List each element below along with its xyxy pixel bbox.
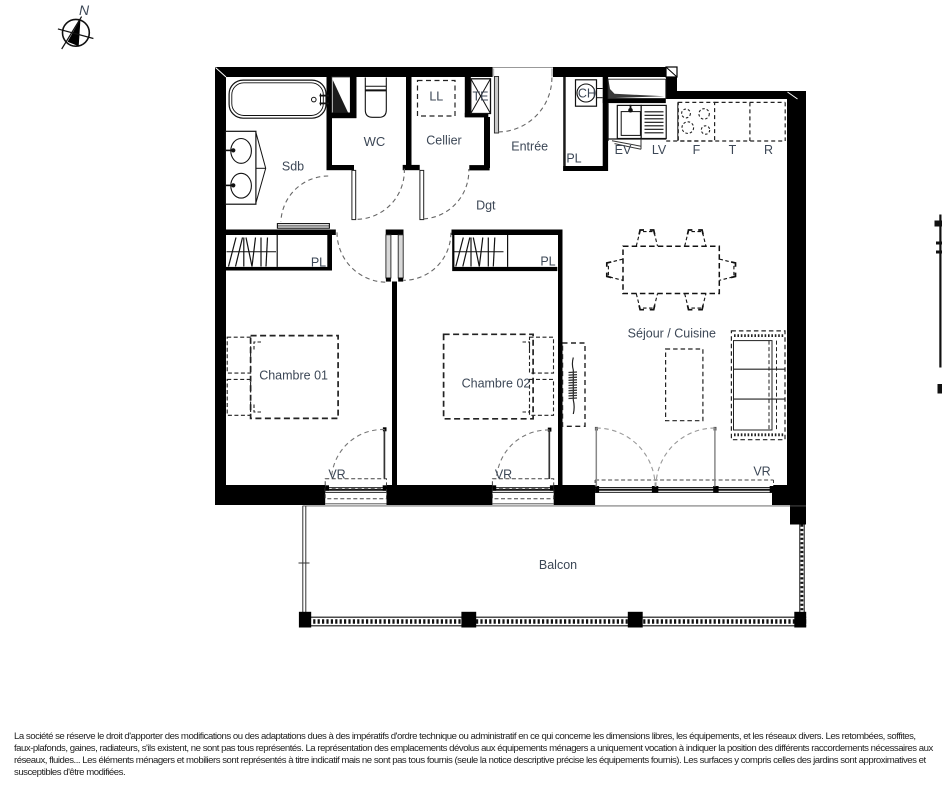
svg-text:Chambre 01: Chambre 01 <box>259 369 328 383</box>
svg-text:CH: CH <box>578 87 596 101</box>
svg-text:Séjour / Cuisine: Séjour / Cuisine <box>628 326 716 340</box>
svg-text:T: T <box>729 143 737 157</box>
svg-text:VR: VR <box>328 468 345 482</box>
svg-text:Cellier: Cellier <box>426 134 461 148</box>
svg-text:PL: PL <box>566 152 581 166</box>
svg-text:Balcon: Balcon <box>539 558 577 572</box>
svg-text:Dgt: Dgt <box>476 199 496 213</box>
svg-text:F: F <box>693 143 701 157</box>
svg-text:PL: PL <box>311 256 326 270</box>
svg-text:N: N <box>79 2 90 18</box>
svg-text:WC: WC <box>364 134 386 149</box>
svg-text:EV: EV <box>615 143 632 157</box>
svg-text:VR: VR <box>495 468 512 482</box>
svg-text:PL: PL <box>540 255 555 269</box>
svg-text:LV: LV <box>652 143 667 157</box>
svg-text:LL: LL <box>429 90 443 104</box>
svg-text:R: R <box>764 143 773 157</box>
svg-text:Entrée: Entrée <box>511 139 548 153</box>
svg-text:VR: VR <box>753 464 770 478</box>
svg-text:Chambre 02: Chambre 02 <box>462 377 531 391</box>
svg-text:TE: TE <box>473 90 489 104</box>
svg-text:Sdb: Sdb <box>282 160 304 174</box>
